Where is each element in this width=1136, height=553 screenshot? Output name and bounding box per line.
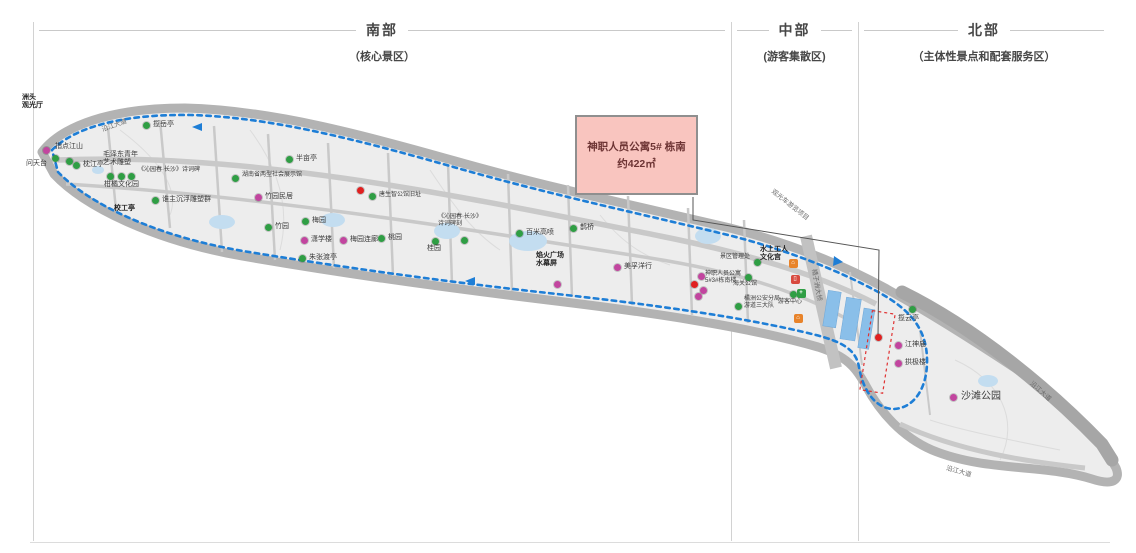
poi-dot-green [152, 197, 159, 204]
poi-label: 焰火广场 水幕屏 [536, 252, 564, 269]
poi-label: 湖南省两型社会展示馆 [242, 172, 302, 179]
poi-label: 竹园 [275, 223, 289, 231]
poi-dot-green [570, 225, 577, 232]
poi-label: 百米高喷 [526, 229, 554, 237]
poi-label: 唐生智公馆旧址 [379, 192, 421, 199]
poi-label: 潇学楼 [311, 236, 332, 244]
poi-dot-red [357, 187, 364, 194]
poi-label: 毛泽东青年 艺术雕塑 [103, 151, 138, 168]
poi-label: 竹园民居 [265, 193, 293, 201]
poi-label: 枕江亭 [83, 161, 104, 169]
red-service-icon: ▯ [791, 275, 800, 284]
poi-label: 水上工人 文化宫 [760, 246, 788, 263]
poi-dot-green [909, 306, 916, 313]
bottom-rule [30, 542, 1110, 543]
poi-dot-magenta [895, 342, 902, 349]
service-house-icon: ⌂ [789, 259, 798, 268]
poi-label: 海关公馆 [733, 281, 757, 288]
poi-label: 半亩亭 [296, 155, 317, 163]
poi-dot-green [52, 155, 59, 162]
poi-label: 江神庙 [905, 341, 926, 349]
poi-dot-magenta [340, 237, 347, 244]
poi-label: 鹊桥 [580, 224, 594, 232]
poi-dot-green [73, 162, 80, 169]
poi-dot-green [143, 122, 150, 129]
poi-dot-magenta [301, 237, 308, 244]
poi-dot-green [302, 218, 309, 225]
poi-dot-green [735, 303, 742, 310]
poi-dot-magenta [695, 293, 702, 300]
poi-label: 游客中心 [778, 299, 802, 306]
poi-dot-red [875, 334, 882, 341]
poi-dot-magenta [554, 281, 561, 288]
poi-dot-green [66, 158, 73, 165]
poi-layer: 洲头 观光厅指点江山问天台枕江亭揽岳亭毛泽东青年 艺术雕塑柑橘文化园《沁园春·长… [0, 0, 1136, 553]
poi-label: 谁主沉浮雕塑群 [162, 196, 211, 204]
poi-label: 梅园 [312, 217, 326, 225]
poi-dot-magenta [950, 394, 957, 401]
poi-label: 拱极楼 [905, 359, 926, 367]
poi-dot-green [232, 175, 239, 182]
poi-dot-green [432, 238, 439, 245]
road-label: 橘子洲大桥 [810, 268, 825, 302]
poi-label: 美孚洋行 [624, 263, 652, 271]
poi-dot-green [107, 173, 114, 180]
poi-dot-magenta [698, 273, 705, 280]
park-map: 洲头 观光厅指点江山问天台枕江亭揽岳亭毛泽东青年 艺术雕塑柑橘文化园《沁园春·长… [0, 0, 1136, 553]
poi-label: 洲头 观光厅 [22, 94, 43, 111]
poi-label: 桃园 [388, 234, 402, 242]
poi-dot-magenta [43, 147, 50, 154]
callout-line2: 约422㎡ [617, 156, 656, 171]
service-house-icon: ⌂ [794, 314, 803, 323]
poi-dot-magenta [614, 264, 621, 271]
poi-label: 揽岳亭 [153, 121, 174, 129]
poi-label: 桂园 [427, 245, 441, 253]
poi-label: 朱张渡亭 [309, 254, 337, 262]
road-label: 沿江大道 [100, 115, 128, 133]
medical-cross-icon: + [797, 289, 806, 298]
poi-dot-green [265, 224, 272, 231]
poi-dot-green [790, 291, 797, 298]
poi-label: 揽云亭 [898, 315, 919, 323]
poi-dot-green [461, 237, 468, 244]
poi-dot-green [128, 173, 135, 180]
poi-label: 《沁园春·长沙》诗词碑 [138, 167, 200, 174]
poi-label: 问天台 [26, 160, 47, 168]
poi-label: 柑橘文化园 [104, 181, 139, 189]
poi-dot-magenta [255, 194, 262, 201]
poi-dot-green [299, 255, 306, 262]
callout-line1: 神职人员公寓5# 栋南 [587, 139, 686, 154]
poi-dot-green [516, 230, 523, 237]
poi-label: 指点江山 [55, 143, 83, 151]
road-label: 沿江大道 [1028, 378, 1054, 403]
poi-label: 橘洲公安分局 游道三大队 [744, 296, 780, 310]
poi-label: 景区管理处 [720, 254, 750, 261]
poi-dot-green [118, 173, 125, 180]
park-map-page: 南部 （核心景区） 中部 (游客集散区) 北部 （主体性景点和配套服务区） [0, 0, 1136, 553]
poi-dot-green [745, 274, 752, 281]
road-label: 观光车游览项目 [770, 186, 812, 222]
poi-dot-magenta [700, 287, 707, 294]
poi-label: 校工亭 [114, 205, 135, 213]
area-callout: 神职人员公寓5# 栋南 约422㎡ [575, 115, 698, 195]
road-label: 沿江大道 [945, 462, 973, 479]
poi-label: 《沁园春·长沙》 诗词碑刻 [438, 214, 482, 228]
poi-dot-magenta [895, 360, 902, 367]
poi-label: 沙滩公园 [961, 391, 1001, 403]
poi-dot-green [286, 156, 293, 163]
poi-dot-green [378, 235, 385, 242]
poi-dot-red [691, 281, 698, 288]
poi-label: 梅园连廊 [350, 236, 378, 244]
poi-dot-green [369, 193, 376, 200]
